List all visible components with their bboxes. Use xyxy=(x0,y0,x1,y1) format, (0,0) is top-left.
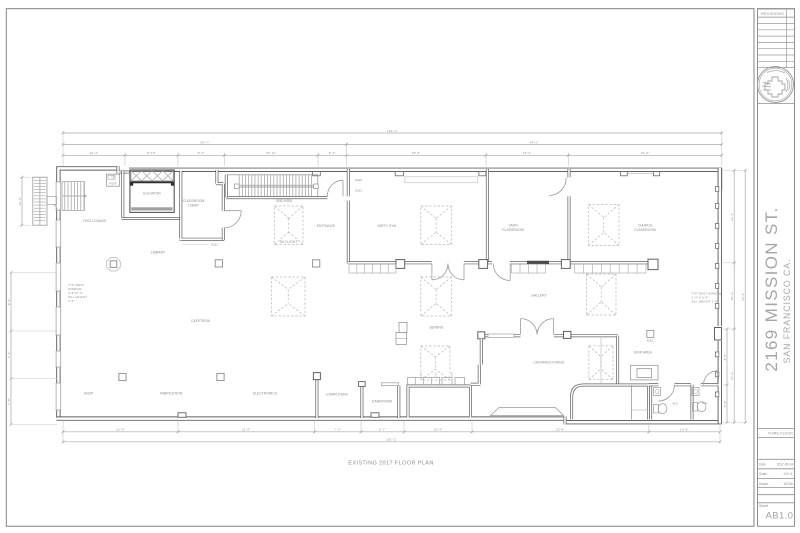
svg-text:1/4"=1': 1/4"=1' xyxy=(783,472,793,476)
svg-text:ONE AREA: ONE AREA xyxy=(276,199,293,203)
svg-text:ELEC.: ELEC. xyxy=(647,339,655,343)
svg-text:SHOP: SHOP xyxy=(84,391,94,395)
svg-text:7'-0": 7'-0" xyxy=(7,398,11,405)
svg-text:SAN FRANCISCO CA.: SAN FRANCISCO CA. xyxy=(782,259,792,364)
svg-text:CLASSROOM: CLASSROOM xyxy=(183,199,205,203)
svg-text:3'-6": 3'-6" xyxy=(68,299,75,303)
svg-text:YARN: YARN xyxy=(508,223,518,227)
svg-text:10'-4": 10'-4" xyxy=(434,428,443,432)
svg-text:Drawn: Drawn xyxy=(759,482,768,486)
svg-text:5'-9": 5'-9" xyxy=(723,400,727,407)
svg-text:44'-6": 44'-6" xyxy=(530,140,539,144)
svg-text:W.C.: W.C. xyxy=(702,401,709,405)
svg-text:16'-0": 16'-0" xyxy=(116,428,125,432)
svg-text:GALLERY: GALLERY xyxy=(531,293,547,297)
svg-text:LIBRARY: LIBRARY xyxy=(151,250,166,254)
svg-text:SINK AREA: SINK AREA xyxy=(634,350,653,354)
svg-text:CAFETERIA: CAFETERIA xyxy=(191,319,211,323)
svg-text:REVISIONS: REVISIONS xyxy=(761,11,784,16)
svg-text:YOGI LOUNGE: YOGI LOUNGE xyxy=(83,219,107,223)
svg-text:101'-1": 101'-1" xyxy=(386,438,397,442)
svg-text:ELECTRONICS: ELECTRONICS xyxy=(253,391,278,395)
svg-text:25'-11": 25'-11" xyxy=(266,151,277,155)
svg-text:CERAMICS FORGE: CERAMICS FORGE xyxy=(534,360,566,364)
svg-text:ACAD: ACAD xyxy=(784,482,794,486)
svg-text:101'-1": 101'-1" xyxy=(387,129,398,133)
svg-text:22'-0": 22'-0" xyxy=(641,151,650,155)
svg-text:FABRICATION: FABRICATION xyxy=(160,391,183,395)
svg-text:2017-05-24: 2017-05-24 xyxy=(777,463,794,467)
svg-text:8'-6": 8'-6" xyxy=(723,353,727,360)
svg-text:Sheet: Sheet xyxy=(759,504,768,508)
svg-text:21'-0": 21'-0" xyxy=(242,428,251,432)
svg-text:9'-0": 9'-0" xyxy=(7,298,11,305)
svg-text:Date: Date xyxy=(759,463,766,467)
svg-text:SEWING: SEWING xyxy=(430,325,444,329)
svg-text:DARKROOM: DARKROOM xyxy=(372,399,392,403)
svg-text:32'-4": 32'-4" xyxy=(556,428,565,432)
svg-text:ELEC.: ELEC. xyxy=(211,243,219,247)
svg-text:DIRTY GYM: DIRTY GYM xyxy=(378,224,397,228)
svg-text:LOBBY: LOBBY xyxy=(188,204,200,208)
svg-text:8'-0": 8'-0" xyxy=(198,151,205,155)
svg-text:2169 MISSION ST.: 2169 MISSION ST. xyxy=(762,206,781,371)
svg-text:56'-7": 56'-7" xyxy=(200,140,209,144)
svg-text:64'-2": 64'-2" xyxy=(741,292,745,301)
svg-text:10'-2": 10'-2" xyxy=(730,291,734,300)
svg-text:ROOF: ROOF xyxy=(109,182,117,186)
svg-text:W.C.: W.C. xyxy=(673,402,680,406)
svg-text:UP: UP xyxy=(111,176,115,180)
svg-text:16'-0": 16'-0" xyxy=(18,197,22,206)
svg-text:8'-10": 8'-10" xyxy=(147,151,156,155)
svg-text:CLASSROOM: CLASSROOM xyxy=(634,228,656,232)
svg-text:8'-2": 8'-2" xyxy=(329,151,336,155)
svg-text:7'-1": 7'-1" xyxy=(334,428,341,432)
svg-text:ELEC.: ELEC. xyxy=(356,189,364,193)
svg-text:7'-3": 7'-3" xyxy=(7,351,11,358)
svg-text:EXISTING 2017 FLOOR PLAN: EXISTING 2017 FLOOR PLAN xyxy=(348,460,434,466)
svg-text:ENTRANCE: ENTRANCE xyxy=(317,224,336,228)
svg-text:16'-2": 16'-2" xyxy=(523,151,532,155)
svg-text:THIRD FLOOR: THIRD FLOOR xyxy=(768,432,794,436)
svg-text:14'-3": 14'-3" xyxy=(730,371,734,380)
svg-text:SKYLIGHT: SKYLIGHT xyxy=(280,240,298,244)
svg-text:13'-6": 13'-6" xyxy=(680,428,689,432)
svg-text:ELEC.: ELEC. xyxy=(356,178,364,182)
svg-text:6'-7": 6'-7" xyxy=(379,428,386,432)
svg-text:COMPUTERS: COMPUTERS xyxy=(326,392,348,396)
svg-text:Scale: Scale xyxy=(759,472,767,476)
svg-text:14'-2": 14'-2" xyxy=(730,212,734,221)
svg-text:16'-4": 16'-4" xyxy=(90,151,99,155)
svg-text:CHURCH: CHURCH xyxy=(638,223,653,227)
svg-text:CLASSROOM: CLASSROOM xyxy=(502,228,524,232)
svg-text:AB1.0: AB1.0 xyxy=(766,511,794,521)
svg-text:26'-8": 26'-8" xyxy=(412,151,421,155)
svg-text:SILL HEIGHT 2'-8": SILL HEIGHT 2'-8" xyxy=(692,300,719,304)
svg-text:ELEVATOR: ELEVATOR xyxy=(143,191,161,195)
